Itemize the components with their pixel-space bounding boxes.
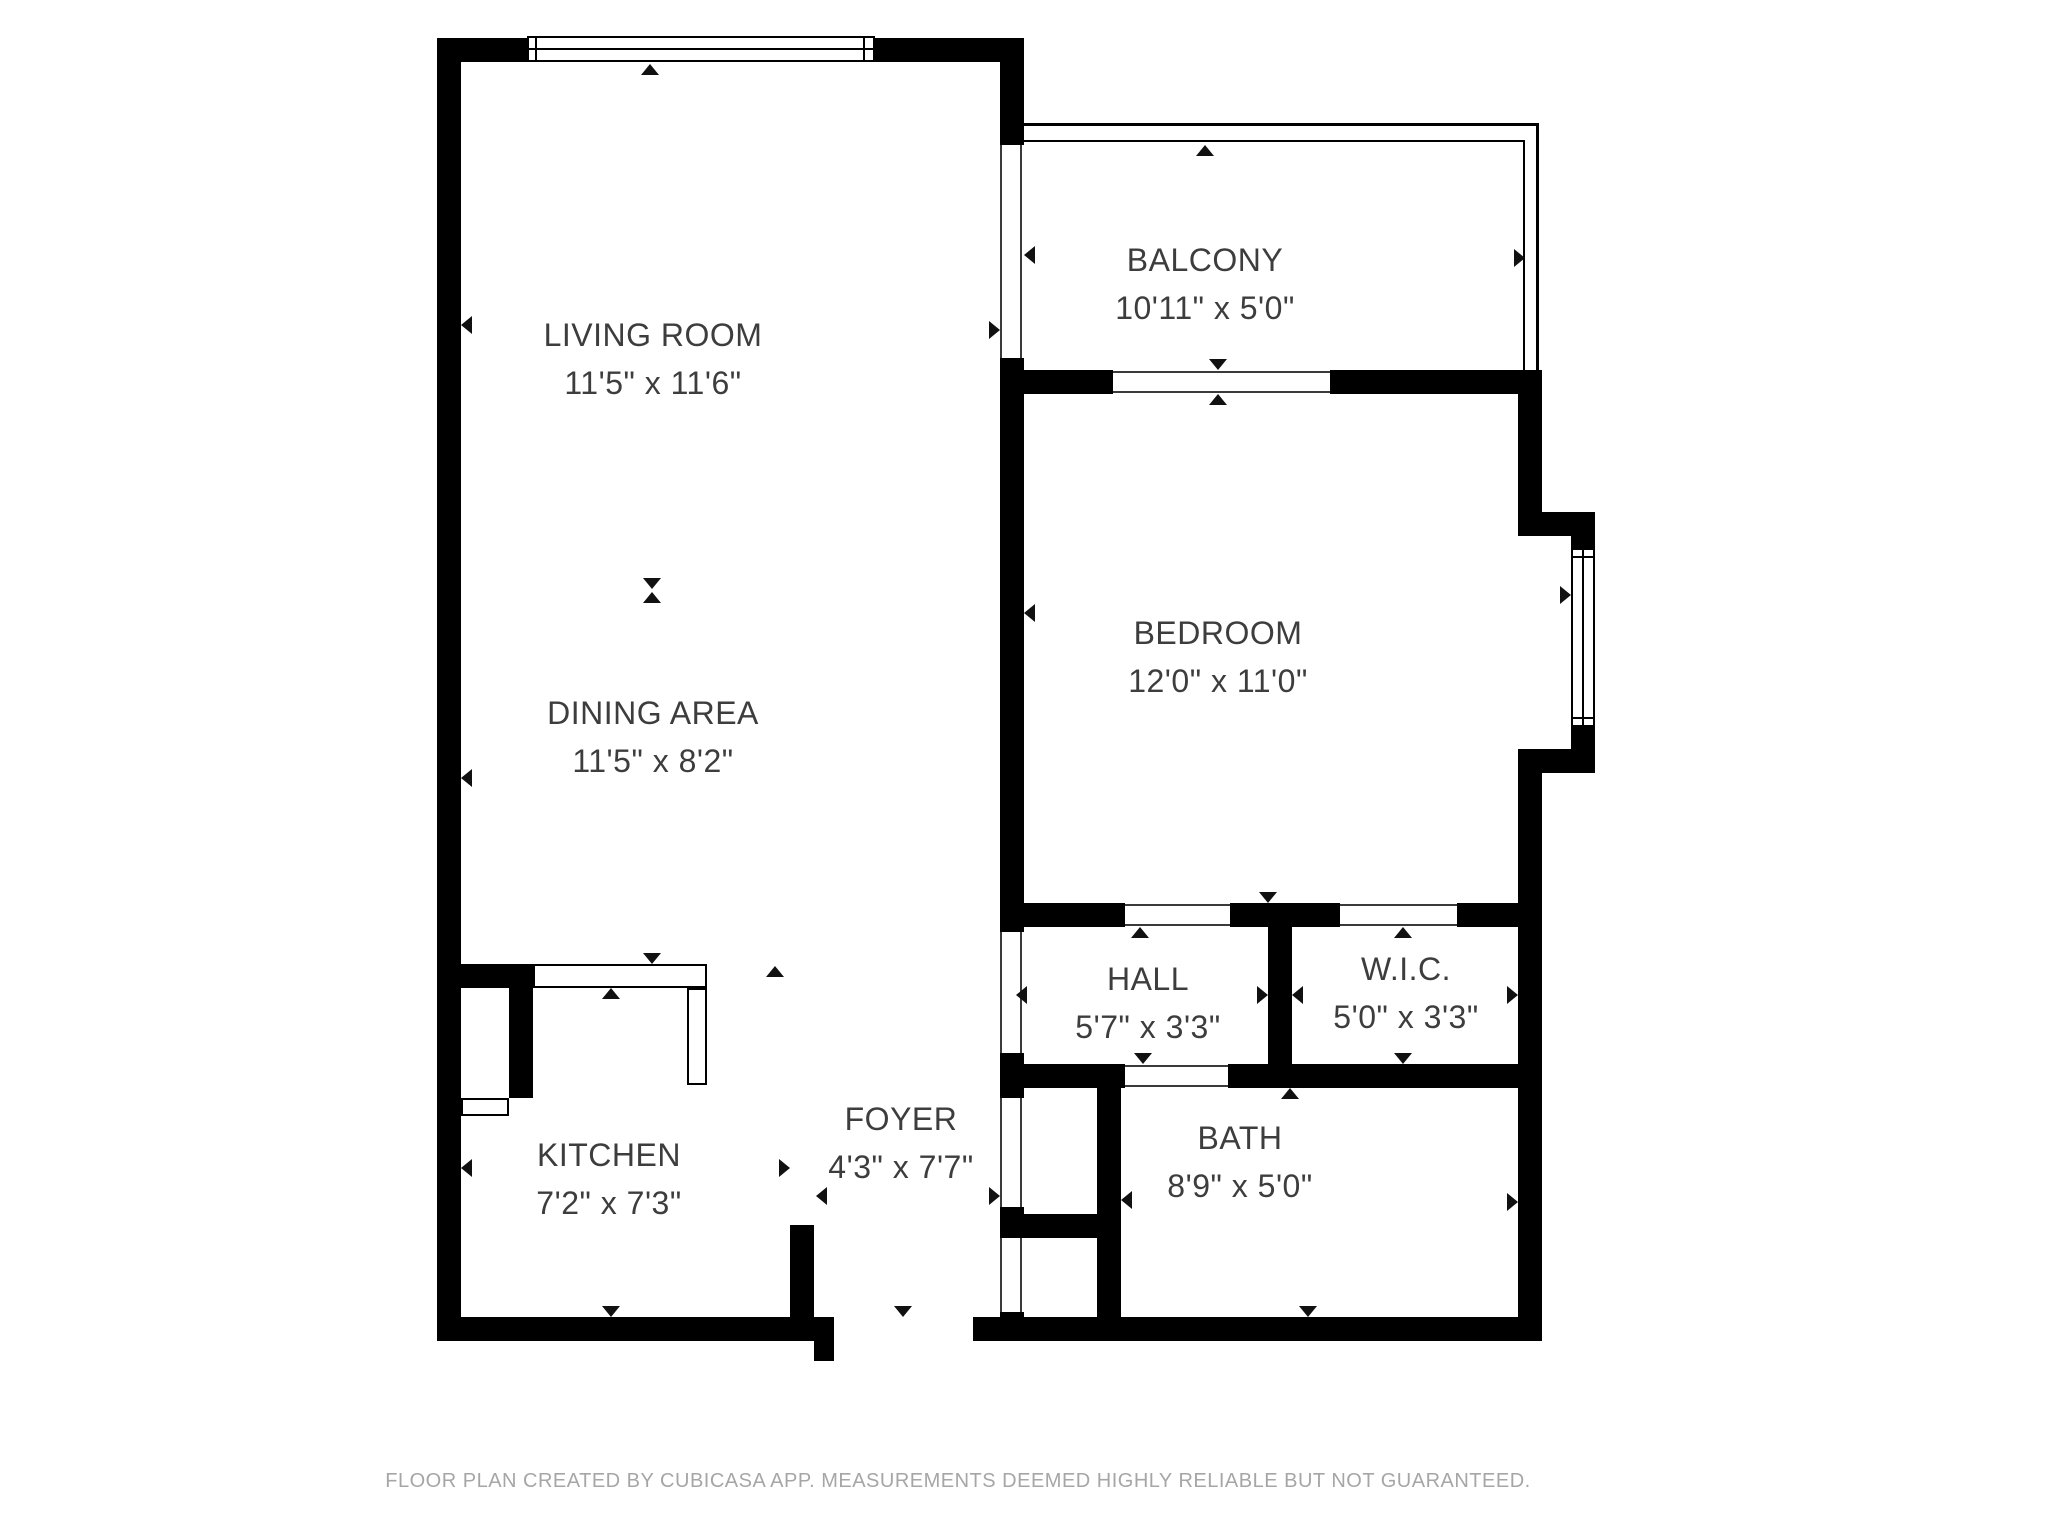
door-opening (1125, 904, 1230, 906)
arrow-right-icon (989, 321, 1000, 339)
wall (437, 38, 461, 1341)
room-dimensions: 12'0" x 11'0" (1128, 657, 1308, 705)
arrow-down-icon (1259, 892, 1277, 903)
room-name: LIVING ROOM (544, 311, 763, 359)
wall (1024, 370, 1113, 394)
wall (1024, 1064, 1125, 1088)
arrow-left-icon (1024, 604, 1035, 622)
arrow-left-icon (816, 1187, 827, 1205)
arrow-down-icon (1299, 1306, 1317, 1317)
arrow-down-icon (602, 1306, 620, 1317)
arrow-right-icon (1507, 1193, 1518, 1211)
arrow-right-icon (1257, 986, 1268, 1004)
window-mullion (863, 38, 865, 60)
room-dimensions: 5'0" x 3'3" (1333, 993, 1478, 1041)
door-opening (1000, 1238, 1002, 1312)
wall (1000, 394, 1024, 932)
arrow-left-icon (461, 1159, 472, 1177)
arrow-right-icon (1560, 586, 1571, 604)
arrow-right-icon (1507, 986, 1518, 1004)
arrow-up-icon (602, 988, 620, 999)
room-name: BATH (1167, 1114, 1312, 1162)
wall (1518, 773, 1542, 1341)
wall (1024, 903, 1125, 927)
room-name: KITCHEN (536, 1131, 681, 1179)
wall (1000, 38, 1024, 145)
door-opening (1020, 145, 1022, 358)
arrow-right-icon (779, 1159, 790, 1177)
arrow-down-icon (643, 953, 661, 964)
room-name: DINING AREA (547, 689, 759, 737)
door-opening (1125, 1085, 1228, 1087)
arrow-left-icon (1016, 986, 1027, 1004)
kitchen-counter (533, 964, 707, 988)
room-label-living-room: LIVING ROOM 11'5" x 11'6" (544, 311, 763, 407)
arrow-down-icon (894, 1306, 912, 1317)
arrow-down-icon (643, 578, 661, 589)
arrow-left-icon (1292, 986, 1303, 1004)
room-dimensions: 4'3" x 7'7" (828, 1143, 973, 1191)
room-label-wic: W.I.C. 5'0" x 3'3" (1333, 945, 1478, 1041)
arrow-left-icon (461, 769, 472, 787)
door-opening (1125, 1065, 1228, 1067)
room-label-bath: BATH 8'9" x 5'0" (1167, 1114, 1312, 1210)
arrow-up-icon (766, 966, 784, 977)
wall (1330, 370, 1542, 394)
door-opening (1000, 145, 1002, 358)
arrow-up-icon (1394, 927, 1412, 938)
door-opening (1113, 371, 1330, 373)
arrow-up-icon (1131, 927, 1149, 938)
door-opening (1000, 1098, 1002, 1207)
door-opening (1340, 924, 1457, 926)
arrow-up-icon (1209, 394, 1227, 405)
footer-disclaimer: FLOOR PLAN CREATED BY CUBICASA APP. MEAS… (0, 1470, 1916, 1493)
arrow-down-icon (1209, 359, 1227, 370)
door-opening (1020, 1098, 1022, 1207)
wall (1097, 1088, 1121, 1341)
room-name: FOYER (828, 1095, 973, 1143)
door-opening (1125, 924, 1230, 926)
room-dimensions: 10'11" x 5'0" (1115, 284, 1295, 332)
room-label-hall: HALL 5'7" x 3'3" (1075, 955, 1220, 1051)
wall (437, 1317, 822, 1341)
wall (1268, 1064, 1542, 1088)
room-name: BEDROOM (1128, 609, 1308, 657)
window-mullion (1573, 556, 1593, 558)
room-dimensions: 11'5" x 11'6" (544, 359, 763, 407)
window-mullion (535, 38, 537, 60)
arrow-up-icon (1196, 145, 1214, 156)
room-dimensions: 11'5" x 8'2" (547, 737, 759, 785)
arrow-up-icon (641, 64, 659, 75)
wall (509, 988, 533, 1098)
room-label-kitchen: KITCHEN 7'2" x 7'3" (536, 1131, 681, 1227)
wall (1268, 903, 1292, 1088)
arrow-right-icon (1514, 249, 1525, 267)
window-mullion (529, 48, 873, 50)
wall (1518, 749, 1595, 773)
door-opening (1000, 932, 1002, 1053)
arrow-down-icon (1394, 1053, 1412, 1064)
floor-plan: LIVING ROOM 11'5" x 11'6" DINING AREA 11… (0, 0, 2048, 1536)
wall (1024, 1214, 1097, 1238)
wall (437, 38, 527, 62)
room-dimensions: 8'9" x 5'0" (1167, 1162, 1312, 1210)
wall (1000, 1053, 1024, 1098)
wall (461, 964, 533, 988)
wall (1457, 903, 1518, 927)
door-opening (1340, 904, 1457, 906)
arrow-up-icon (1281, 1088, 1299, 1099)
wall (1571, 512, 1595, 548)
arrow-right-icon (989, 1187, 1000, 1205)
door-opening (1020, 1238, 1022, 1312)
entry-door-jamb (814, 1317, 834, 1361)
wall (1228, 1064, 1268, 1088)
window-mullion (1582, 550, 1584, 725)
room-name: HALL (1075, 955, 1220, 1003)
kitchen-counter (687, 988, 707, 1085)
room-label-bedroom: BEDROOM 12'0" x 11'0" (1128, 609, 1308, 705)
room-label-balcony: BALCONY 10'11" x 5'0" (1115, 236, 1295, 332)
room-dimensions: 7'2" x 7'3" (536, 1179, 681, 1227)
door-opening (1113, 391, 1330, 393)
arrow-left-icon (461, 316, 472, 334)
room-label-foyer: FOYER 4'3" x 7'7" (828, 1095, 973, 1191)
arrow-left-icon (1024, 246, 1035, 264)
arrow-up-icon (643, 592, 661, 603)
wall (1518, 394, 1542, 512)
wall (1000, 1207, 1024, 1238)
room-label-dining-area: DINING AREA 11'5" x 8'2" (547, 689, 759, 785)
closet-shelf (461, 1098, 509, 1116)
wall (1000, 358, 1024, 394)
room-name: W.I.C. (1333, 945, 1478, 993)
room-dimensions: 5'7" x 3'3" (1075, 1003, 1220, 1051)
window-mullion (1573, 717, 1593, 719)
wall (973, 1317, 1542, 1341)
wall (790, 1225, 814, 1341)
room-name: BALCONY (1115, 236, 1295, 284)
wall (1571, 727, 1595, 749)
arrow-down-icon (1134, 1053, 1152, 1064)
arrow-left-icon (1121, 1191, 1132, 1209)
